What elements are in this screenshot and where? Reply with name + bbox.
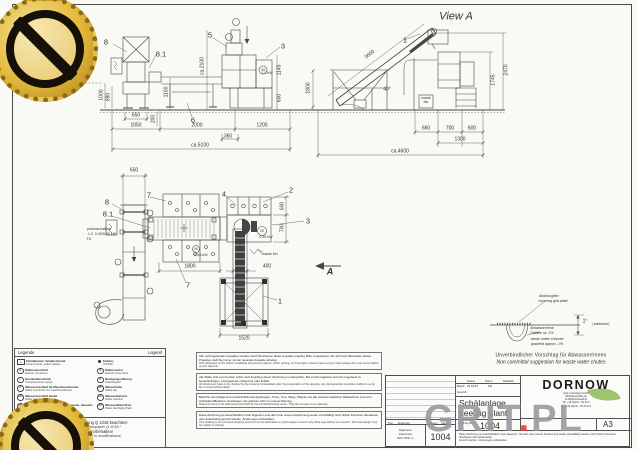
rev-change-label: Änderung	[398, 421, 410, 424]
dim-label: 1800	[184, 265, 195, 270]
legend-text: ElektroanschlußElectric connection	[25, 368, 48, 375]
legend-title-en: Legend	[148, 350, 162, 355]
chute-caption-de: Unverbindlicher Vorschlag für Abwasserri…	[495, 354, 606, 359]
chute-caption-en: Non committal suggestion for waste water…	[497, 361, 606, 366]
dim-label: 1800	[307, 82, 312, 93]
legend-item: RReinigungsöffnungCleaningdoor	[97, 377, 163, 384]
legend-symbol-icon: L	[17, 377, 24, 384]
label-motor-kw-b: 0,55 kW	[259, 236, 272, 240]
legend-symbol-icon: WD	[17, 394, 24, 401]
dim-label: 660	[422, 127, 430, 132]
legend-symbol-icon: E	[17, 368, 24, 375]
col-name: Name	[485, 379, 503, 383]
dim-label: 1300	[454, 138, 465, 143]
legend-symbol-icon: WÜ	[97, 394, 104, 401]
label-part-1: 1	[403, 36, 407, 44]
label-motor-m-a: M	[194, 247, 197, 251]
label-part-3-plan: 3	[306, 217, 310, 225]
dim-label: 400	[263, 265, 271, 270]
dim-label: 2000	[191, 124, 202, 129]
label-part-3: 3	[281, 42, 285, 50]
legend-title-de: Legende	[18, 350, 34, 355]
view-a-title: View A	[439, 12, 473, 23]
company-name: DORNOW	[521, 378, 631, 392]
dim-label: 1745	[492, 74, 497, 85]
legend-text: Wasseranschluß für Maschinen/GeräteWater…	[25, 385, 78, 392]
chute-label-ch-de2: Gefälle ca. 1%	[530, 332, 553, 336]
legend-item: WAWasserablauf (frei)Water discharge (fr…	[97, 403, 163, 410]
legend-symbol-icon: W	[17, 385, 24, 392]
chute-label-slope: 1°	[583, 320, 588, 325]
dim-label: 600	[281, 202, 286, 210]
label-motor-m-elev: M	[261, 68, 264, 72]
dim-label: 40°	[383, 88, 391, 93]
legend-text: WasserüberlaufWater overflow	[105, 394, 127, 401]
legend-item: WÜWasserüberlaufWater overflow	[97, 394, 163, 401]
dim-label: ca.5100	[191, 144, 209, 149]
legend-symbol-icon: R	[97, 377, 104, 384]
notes-column: Alle vorhergehenden Ausgaben werden durc…	[196, 352, 382, 431]
label-motor-kw-elev: 1,1 kW	[261, 72, 272, 76]
dim-label: 360	[224, 135, 232, 140]
chute-label-min: (minimum)	[593, 323, 610, 327]
legend-column-right: Ein/AusON/OFFMElektromotorElectric motor…	[97, 359, 163, 415]
dim-label: 600	[468, 127, 476, 132]
legend-item: LDruckluftanschlußCompressed air supply	[17, 377, 97, 384]
label-part-2: 2	[289, 186, 293, 194]
label-part-4: 4	[222, 190, 226, 198]
legend-symbol-icon	[98, 360, 101, 363]
note-paragraph: Bauliche Vorschläge sind unverbindliche …	[196, 393, 382, 408]
note-paragraph: Alle Maße sind vom Kunden sofort nach Em…	[196, 373, 382, 391]
watermark-dot: .	[519, 398, 532, 440]
dim-label: ca.2100	[201, 57, 206, 75]
tolerance-box: Allgemein-toleranzenDIN 7168 -m	[386, 425, 426, 448]
legend-item: EElektroanschlußElectric connection	[17, 368, 97, 375]
label-part-7b: 7	[186, 281, 190, 289]
label-pole-3: FU	[87, 238, 92, 242]
dim-label: 650	[132, 114, 140, 119]
label-part-1-plan: 1	[278, 297, 282, 305]
legend-text: Ein/AusON/OFF	[103, 359, 114, 366]
title-block-columns: Datum Name Maßstab	[456, 376, 521, 384]
chute-label-ch-en2: gradient approx. 1%	[531, 343, 563, 347]
tolerance-box-item: DIN 7168 -m	[386, 436, 425, 440]
chute-label-grid-en: covering grid plate	[538, 300, 567, 304]
dim-label: 890	[107, 93, 112, 101]
legend-symbol-icon: WH	[97, 385, 104, 392]
legend-text: Schaltkasten, SchaltschrankControl panel…	[26, 359, 65, 366]
label-waste-bin-plan: waste bin	[262, 253, 277, 257]
legend-text: ElektromotorElectric motor drive	[105, 368, 128, 375]
dim-label: 1520	[238, 337, 249, 342]
legend-symbol-icon: WA	[97, 403, 104, 410]
legend-text: Wasserablauf (frei)Water discharge (free…	[105, 403, 132, 410]
dim-label: 1050	[130, 124, 141, 129]
label-waste-bin-view-a2: bin	[424, 101, 429, 105]
legend-text: WasserhahnWater tap	[105, 385, 122, 392]
note-paragraph: Diese Zeichnung ist ausschließlich unser…	[196, 411, 382, 429]
view-arrow-a: A	[327, 268, 334, 277]
label-part-7a: 7	[147, 191, 151, 199]
label-part-8: 8	[104, 38, 108, 46]
top-elevation	[100, 19, 505, 113]
legend-item: ∿Schaltkasten, SchaltschrankControl pane…	[17, 359, 97, 366]
legend-symbol-icon: M	[97, 368, 104, 375]
dim-label: 700	[446, 127, 454, 132]
legend-text: DruckluftanschlußCompressed air supply	[25, 377, 52, 384]
legend-item: MElektromotorElectric motor drive	[97, 368, 163, 375]
dim-label: 200	[152, 115, 157, 123]
view-a-dims	[312, 24, 507, 158]
sheet-size-divider	[596, 419, 597, 430]
grit-pl-watermark: GRIT.PL	[424, 400, 584, 438]
legend-symbol-icon: ∿	[17, 359, 25, 365]
label-part-8-1-plan: 8.1	[103, 210, 113, 218]
dim-label: 600	[278, 94, 283, 102]
label-part-8-1: 8.1	[156, 50, 166, 58]
legend-item: WWasseranschluß für Maschinen/GeräteWate…	[17, 385, 97, 392]
sheet-size: A3	[603, 420, 613, 429]
legend-text: ReinigungsöffnungCleaningdoor	[105, 377, 132, 384]
col-datum: Datum	[467, 379, 485, 383]
label-part-8-plan: 8	[105, 198, 109, 206]
dim-label: 1200	[256, 124, 267, 129]
note-paragraph: Alle vorhergehenden Ausgaben werden durc…	[196, 352, 382, 370]
rev-pos-label: Pos.	[388, 421, 394, 424]
legend-item: Ein/AusON/OFF	[97, 359, 163, 366]
dim-label: 1000	[100, 89, 105, 100]
drawing-sheet: 88.1536ca.210011456001100100089020065010…	[0, 0, 637, 450]
row-geprueft: Geprüft	[456, 390, 521, 397]
dim-label: 1145	[278, 65, 283, 76]
col-massstab: Maßstab	[503, 379, 521, 383]
label-motor-kw-a: 0,55 kW	[194, 254, 207, 258]
label-part-5: 5	[208, 31, 212, 39]
legend-item: WHWasserhahnWater tap	[97, 385, 163, 392]
dim-label: 2470	[505, 64, 510, 75]
label-pole-2: 1:2, 0,45/0,80 kW	[88, 233, 116, 237]
watermark-text: GRIT	[424, 398, 519, 440]
label-motor-m-b: M	[260, 229, 263, 233]
plan-view-linework	[94, 194, 271, 328]
legend-header: Legende Legend	[15, 349, 165, 357]
dim-label: 1100	[165, 87, 170, 98]
watermark-tld: PL	[531, 398, 584, 440]
dim-label: ca.4600	[391, 150, 409, 155]
dim-label: 700	[281, 224, 286, 232]
dim-label: 650	[130, 169, 138, 174]
